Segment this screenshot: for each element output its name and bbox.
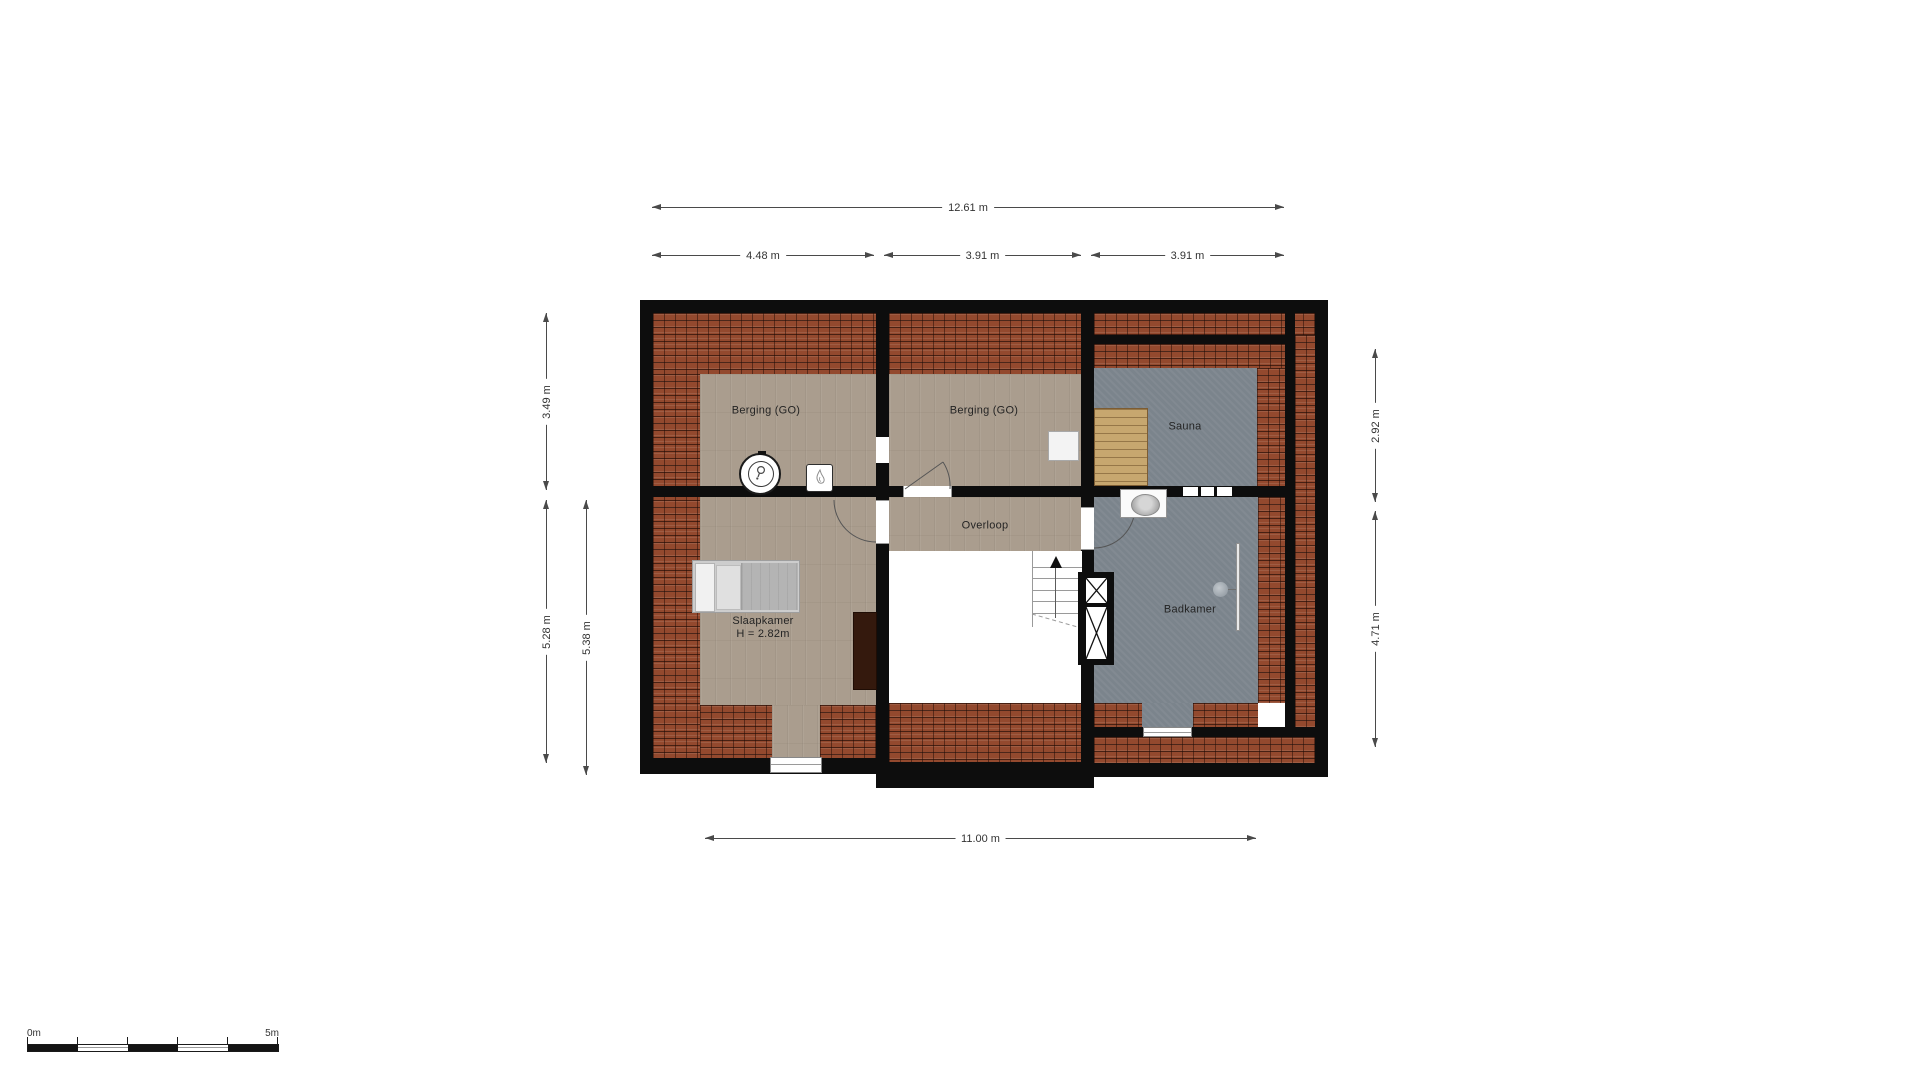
scale-bar-segment	[178, 1045, 228, 1051]
dimension-top-middle: 3.91 m	[884, 255, 1081, 256]
room-label-sauna: Sauna	[1168, 420, 1201, 433]
room-label-slaapkamer-height: H = 2.82m	[736, 628, 789, 640]
wall-interior-horizontal	[1094, 335, 1285, 344]
floor-badkamer	[1142, 703, 1193, 727]
roof-tile-area	[1258, 497, 1285, 703]
roof-tile-area	[1295, 335, 1315, 763]
room-label-berging-left: Berging (GO)	[732, 404, 800, 417]
bed-mattress	[741, 563, 798, 610]
stair-tread	[1033, 590, 1082, 591]
dimension-label: 5.28 m	[541, 609, 553, 655]
ventilation-glyph-icon	[751, 464, 769, 482]
scale-bar-segment	[128, 1045, 178, 1051]
scale-bar-start-label: 0m	[27, 1028, 41, 1039]
wardrobe	[853, 612, 877, 690]
dimension-label: 5.38 m	[581, 615, 593, 661]
room-label-overloop: Overloop	[962, 519, 1009, 532]
dimension-label: 11.00 m	[955, 833, 1006, 845]
wall-outer-bottom-step	[876, 762, 1094, 788]
bed-headboard	[695, 563, 715, 612]
unit-mount-tab	[758, 451, 766, 455]
bed-pillow	[716, 565, 741, 610]
stairs-up-arrow-icon	[1050, 556, 1062, 568]
shaft-cross-icon	[1086, 607, 1107, 659]
dimension-label: 3.91 m	[960, 250, 1006, 262]
window-dormer	[770, 757, 822, 773]
dimension-label: 12.61 m	[942, 202, 994, 214]
room-label-badkamer: Badkamer	[1164, 603, 1216, 616]
scale-bar-bar	[27, 1044, 279, 1052]
roof-tile-area	[1094, 703, 1142, 727]
wall-outer-right	[1315, 300, 1328, 777]
dimension-top-total: 12.61 m	[652, 207, 1284, 208]
shower-glass-panel	[1236, 543, 1240, 631]
dimension-left-upper: 3.49 m	[546, 313, 547, 490]
dimension-top-left: 4.48 m	[652, 255, 874, 256]
boiler-icon	[806, 464, 833, 492]
sauna-glass-door	[1183, 487, 1232, 496]
washbasin	[1120, 489, 1167, 518]
wall-outer-bottom	[1094, 763, 1328, 777]
roof-tile-area	[1257, 368, 1285, 486]
wall-outer-top	[640, 300, 1328, 313]
floor-dormer	[772, 705, 820, 758]
door-arc-berging	[905, 444, 951, 490]
wall-interior-horizontal	[1094, 727, 1315, 737]
room-label-slaapkamer: Slaapkamer H = 2.82m	[732, 615, 793, 641]
door-arc-slaapkamer	[834, 500, 877, 543]
door-badkamer	[1081, 507, 1094, 550]
floorplan-document: Berging (GO) Berging (GO) Sauna Overloop…	[0, 0, 1920, 1080]
roof-tile-area	[653, 313, 876, 374]
door-slaapkamer	[876, 500, 889, 544]
ventilation-unit-icon	[739, 453, 781, 495]
roof-tile-area	[820, 705, 876, 762]
stair-tread	[1033, 601, 1082, 602]
window-badkamer	[1143, 727, 1192, 737]
room-label-slaapkamer-name: Slaapkamer	[732, 615, 793, 627]
bed	[692, 560, 800, 613]
dimension-right-upper: 2.92 m	[1375, 349, 1376, 502]
dimension-label: 4.48 m	[740, 250, 786, 262]
roof-tile-area	[889, 313, 1081, 374]
dimension-label: 3.49 m	[541, 379, 553, 425]
dimension-label: 4.71 m	[1370, 606, 1382, 652]
dimension-label: 3.91 m	[1165, 250, 1211, 262]
duct-shaft	[1078, 572, 1114, 665]
cabinet	[1048, 431, 1079, 461]
dimension-label: 2.92 m	[1370, 403, 1382, 449]
roof-tile-area	[700, 705, 772, 762]
roof-tile-area	[1193, 703, 1258, 727]
roof-tile-area	[889, 703, 1081, 764]
scale-bar: 0m 5m	[27, 1028, 279, 1052]
scale-bar-segment	[78, 1045, 128, 1051]
sauna-bench	[1094, 408, 1148, 486]
shower-head-icon	[1213, 582, 1228, 597]
roof-tile-area	[1094, 344, 1285, 368]
stairs-cut-line	[1032, 608, 1082, 632]
flame-icon	[811, 468, 829, 488]
wall-outer-bottom	[640, 758, 876, 774]
dimension-left-lower-inner: 5.38 m	[586, 500, 587, 775]
roof-tile-area	[1094, 737, 1315, 763]
washbasin-bowl	[1131, 494, 1160, 516]
stair-tread	[1033, 578, 1082, 579]
dimension-left-lower: 5.28 m	[546, 500, 547, 763]
dimension-right-lower: 4.71 m	[1375, 511, 1376, 747]
dimension-bottom-total: 11.00 m	[705, 838, 1256, 839]
wall-interior-vertical	[1285, 313, 1295, 737]
scale-bar-segment	[28, 1045, 78, 1051]
wall-outer-left	[640, 300, 653, 774]
room-label-berging-right: Berging (GO)	[950, 404, 1018, 417]
wall-opening	[876, 437, 889, 463]
dimension-top-right: 3.91 m	[1091, 255, 1284, 256]
shaft-cross-icon	[1086, 578, 1107, 603]
scale-bar-segment	[228, 1045, 278, 1051]
